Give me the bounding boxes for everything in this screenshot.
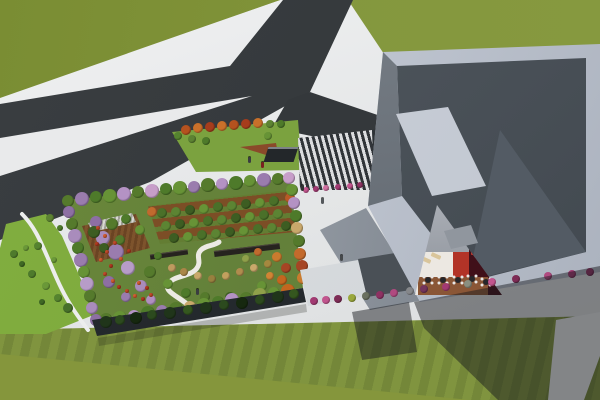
- garden-border-dot: [128, 310, 140, 322]
- garden-interior-dot: [257, 281, 267, 291]
- flower-dots-dot: [105, 250, 109, 254]
- terrace-table-cluster: [469, 276, 475, 282]
- plaza-flowers-dot: [323, 185, 329, 191]
- strip-bushes-dot: [10, 250, 18, 258]
- courtyard-tables: [0, 0, 600, 400]
- patch-trees-dot: [264, 132, 272, 140]
- garden-interior-dot: [103, 276, 115, 288]
- flower-dots-dot: [137, 281, 141, 285]
- strip-bushes-dot: [63, 303, 73, 313]
- facade-bushes-dot: [115, 315, 125, 325]
- facade-bushes-dot: [219, 300, 229, 310]
- street-bushes-dot: [376, 291, 384, 299]
- flower-dots-dot: [95, 242, 99, 246]
- alley-shadow: [0, 0, 600, 400]
- orchard-trees-dot: [253, 224, 263, 234]
- garden-border-dot: [90, 191, 102, 203]
- garden-border-dot: [296, 260, 308, 272]
- garden-border-dot: [229, 176, 243, 190]
- courtyard-floor-white: [415, 252, 453, 295]
- strip-bushes-dot: [39, 299, 45, 305]
- garden-border-dot: [244, 175, 256, 187]
- plaza-flowers-dot: [357, 182, 363, 188]
- garden-border-dot: [160, 183, 172, 195]
- facade-bushes: [0, 0, 600, 400]
- flower-dots-dot: [133, 294, 137, 298]
- garden-border-dot: [74, 253, 88, 267]
- playground-piece-red: [471, 251, 475, 255]
- street-bushes-dot: [586, 268, 594, 276]
- striped-lawn: [0, 0, 600, 400]
- courtyard: [0, 0, 600, 400]
- orchard-trees-dot: [199, 204, 209, 214]
- street-bushes-dot: [512, 275, 520, 283]
- shadow-annex: [0, 0, 600, 400]
- orchard-trees-dot: [259, 210, 269, 220]
- garden-border-dot: [63, 206, 75, 218]
- garden-border-dot: [113, 311, 127, 325]
- street-bushes-dot: [310, 297, 318, 305]
- strip-bushes-dot: [34, 242, 42, 250]
- garden-border-dot: [212, 296, 224, 308]
- plaza-flowers: [0, 0, 600, 400]
- terrace-table-cluster: [440, 277, 446, 283]
- garden-interior-dot: [222, 272, 230, 280]
- patch-trees-dot: [174, 132, 182, 140]
- orchard-trees-dot: [171, 207, 181, 217]
- flower-dots-dot: [99, 258, 103, 262]
- flower-dots-dot: [125, 289, 129, 293]
- green-strip-west: [0, 0, 600, 400]
- orchard-trees-dot: [185, 205, 195, 215]
- garden-border-dot: [62, 195, 74, 207]
- garden-facade-shadow: [0, 0, 600, 400]
- fork-lawn-patch: [0, 0, 600, 400]
- garden-border-dot: [141, 306, 155, 320]
- garden-border-dot: [257, 173, 271, 187]
- strip-bushes: [0, 0, 600, 400]
- strip-bushes-dot: [46, 214, 54, 222]
- garden-border-dot: [66, 218, 78, 230]
- garden-border-dot: [283, 172, 295, 184]
- orchard-trees-dot: [239, 226, 249, 236]
- striped-plaza: [0, 0, 600, 400]
- strip-bushes-dot: [42, 282, 50, 290]
- orchard-trees-dot: [269, 196, 279, 206]
- garden-border-dot: [197, 298, 211, 312]
- garden-border-dot: [297, 272, 309, 284]
- orchard-trees-dot: [197, 230, 207, 240]
- orchard-trees-dot: [203, 216, 213, 226]
- street-bushes-dot: [322, 296, 330, 304]
- garden-border-dot: [293, 235, 305, 247]
- courtyard-wall: [415, 205, 502, 258]
- garden-border-dot: [272, 173, 284, 185]
- facade-bushes-dot: [164, 307, 176, 319]
- facade-bushes-dot: [130, 312, 142, 324]
- orchard-trees-dot: [217, 215, 227, 225]
- grass-top-left: [0, 0, 600, 400]
- orchard-trees-dot: [183, 232, 193, 242]
- garden-border-dot: [281, 284, 295, 298]
- roof-light-plane: [0, 0, 600, 400]
- garden-interior-dot: [99, 243, 109, 253]
- building-parapet: [0, 0, 600, 400]
- flower-dots-dot: [103, 272, 107, 276]
- bus-shelter-canopy: [264, 147, 299, 162]
- garden-interior-dot: [146, 295, 156, 305]
- patch-trees-dot: [205, 122, 215, 132]
- plaza-flowers-dot: [313, 186, 319, 192]
- flower-dots-dot: [111, 279, 115, 283]
- annex-roof-dark: [0, 0, 600, 400]
- garden-border-dot: [173, 181, 187, 195]
- patch-trees-dot: [188, 135, 196, 143]
- garden-border-dot: [288, 197, 300, 209]
- garden-interior-dot: [277, 275, 287, 285]
- street-bushes-dot: [390, 289, 398, 297]
- courtyard-terrace-brown: [418, 277, 488, 295]
- facade-bushes-dot: [236, 297, 248, 309]
- garden-border-dot: [188, 181, 200, 193]
- facade-bushes-dot: [272, 291, 284, 303]
- garden-border-dot: [72, 242, 84, 254]
- orchard-trees-dot: [225, 227, 235, 237]
- deck-pergola: [0, 0, 600, 400]
- patch-trees-dot: [241, 119, 251, 129]
- garden-interior-dot: [115, 235, 125, 245]
- garden-border-dot: [103, 189, 117, 203]
- flower-dots-dot: [141, 297, 145, 301]
- orchard-soil: [0, 0, 600, 400]
- garden-interior-dot: [264, 260, 272, 268]
- strip-bushes-dot: [28, 270, 36, 278]
- orchard-trees-dot: [255, 198, 265, 208]
- garden-flower-dots: [0, 0, 600, 400]
- street-bushes-dot: [464, 280, 472, 288]
- road-east: [0, 0, 600, 400]
- flower-dots-dot: [119, 257, 123, 261]
- plaza-flowers-dot: [347, 183, 353, 189]
- road-main: [0, 0, 600, 400]
- plaza-flowers-dot: [303, 187, 309, 193]
- street-bushes-dot: [348, 294, 356, 302]
- street-bushes-dot: [488, 278, 496, 286]
- garden-border-dot: [240, 292, 252, 304]
- grass-top-right: [0, 0, 600, 400]
- garden-interior-dot: [121, 261, 135, 275]
- garden-interior-dot: [281, 263, 291, 273]
- grass-base: [0, 0, 600, 400]
- amphitheater-triangle: [0, 0, 600, 400]
- west-walkway-path: [22, 214, 88, 330]
- street-bushes-dot: [362, 292, 370, 300]
- courtyard-floor-red: [453, 252, 469, 295]
- garden-interior-dot: [135, 280, 147, 292]
- skylight-big: [0, 0, 600, 400]
- pedestrian: [261, 162, 264, 168]
- patch-trees-dot: [229, 120, 239, 130]
- garden-interior-dot: [88, 226, 100, 238]
- orchard-trees-dot: [267, 223, 277, 233]
- orchard-trees-dot: [211, 229, 221, 239]
- street-bushes-dot: [442, 283, 450, 291]
- flower-dots-dot: [127, 249, 131, 253]
- garden-interior-dot: [135, 225, 145, 235]
- garden-border-dot: [268, 287, 280, 299]
- annex-roof-light: [0, 0, 600, 400]
- garden-border-dot: [291, 222, 303, 234]
- courtyard-floor-maroon: [469, 238, 502, 295]
- lounge-chair-2: [431, 252, 442, 260]
- lounge-chair-1: [421, 256, 432, 264]
- garden-interior-dot: [180, 268, 188, 276]
- garden-border-dot: [216, 178, 228, 190]
- patch-trees-dot: [277, 120, 285, 128]
- garden-border-dot: [145, 184, 159, 198]
- building-left-wall: [0, 0, 600, 400]
- garden-border-trees: [0, 0, 600, 400]
- orchard-trees-dot: [189, 218, 199, 228]
- pedestrian: [248, 157, 251, 163]
- garden-interior-dot: [121, 214, 131, 224]
- flower-dots-dot: [149, 293, 153, 297]
- west-path-svg: [0, 0, 600, 400]
- flower-dots-dot: [109, 264, 113, 268]
- playground-piece-blue: [478, 247, 482, 251]
- garden-border-dot: [184, 301, 196, 313]
- pedestrian: [301, 185, 304, 191]
- street-bushes-dot: [334, 295, 342, 303]
- path-right: [0, 0, 600, 400]
- road-median-island: [0, 0, 600, 400]
- garden-border-dot: [117, 187, 131, 201]
- garden-border-dot: [290, 210, 302, 222]
- strip-bushes-dot: [19, 261, 25, 267]
- plaza-flowers-dot: [335, 184, 341, 190]
- garden-interior-dot: [272, 252, 282, 262]
- garden-bench-2: [214, 243, 280, 257]
- terrace-table-cluster: [455, 277, 461, 283]
- orchard-trees-dot: [213, 202, 223, 212]
- plain-grass: [0, 0, 600, 400]
- garden-border-dot: [253, 288, 267, 302]
- street-bushes-dot: [420, 285, 428, 293]
- garden-border-dot: [68, 229, 82, 243]
- pedestrians: [0, 0, 600, 400]
- orchard-trees-dot: [169, 233, 179, 243]
- pedestrian: [196, 289, 199, 295]
- playground-piece-yellow: [474, 241, 478, 245]
- garden-interior-dot: [194, 272, 202, 280]
- garden-border-dot: [75, 192, 89, 206]
- strip-bushes-dot: [57, 225, 63, 231]
- facade-bushes-dot: [100, 316, 112, 328]
- garden-border-dot: [294, 248, 306, 260]
- pedestrian: [340, 255, 343, 261]
- garden-interior-dot: [250, 264, 258, 272]
- garden-border-dot: [132, 186, 144, 198]
- garden-border-dot: [286, 184, 298, 196]
- orchard-trees-dot: [227, 201, 237, 211]
- facade-bushes-dot: [200, 302, 212, 314]
- garden-border-dot: [84, 290, 96, 302]
- garden-interior-dot: [163, 279, 173, 289]
- garden-interior-dot: [168, 264, 176, 272]
- garden-interior-dot: [96, 231, 110, 245]
- facade-bushes-dot: [147, 310, 157, 320]
- garden-border-dot: [86, 302, 98, 314]
- garden-interior-dot: [121, 292, 131, 302]
- shadow-building: [0, 0, 600, 400]
- pavement-main: [0, 0, 600, 400]
- garden-path-svg: [0, 0, 600, 400]
- street-bushes: [0, 0, 600, 400]
- skylight-small: [0, 0, 600, 400]
- garden-interior-dot: [225, 292, 235, 302]
- garden-interior-dot: [266, 272, 274, 280]
- patch-trees-dot: [181, 125, 191, 135]
- orchard-trees-dot: [241, 199, 251, 209]
- flower-dots-dot: [113, 241, 117, 245]
- orchard-trees-dot: [157, 208, 167, 218]
- render-canvas: [0, 0, 600, 400]
- garden-border-dot: [156, 305, 168, 317]
- orchard-trees-dot: [161, 221, 171, 231]
- strip-bushes-dot: [23, 245, 29, 251]
- building-roof-inner: [0, 0, 600, 400]
- garden-border-dot: [225, 293, 239, 307]
- terrace-table-cluster: [483, 279, 489, 285]
- facade-bushes-dot: [183, 305, 193, 315]
- garden-interior-dot: [106, 218, 118, 230]
- garden-interior-dot: [181, 288, 191, 298]
- patch-trees-dot: [266, 120, 274, 128]
- orchard-trees-dot: [245, 212, 255, 222]
- patch-trees-dot: [202, 137, 210, 145]
- patch-trees-dot: [193, 123, 203, 133]
- orchard-trees-dot: [285, 193, 295, 203]
- garden-border-dot: [90, 314, 102, 326]
- patch-trees: [0, 0, 600, 400]
- patch-trees-dot: [253, 118, 263, 128]
- orchard-trees-dot: [273, 209, 283, 219]
- garden-border-dot: [169, 302, 183, 316]
- playground-piece-green: [469, 245, 473, 249]
- flower-dots-dot: [145, 286, 149, 290]
- orchard-trees-dot: [147, 207, 157, 217]
- garden-interior-dot: [90, 216, 102, 228]
- garden-interior-dot: [200, 292, 210, 302]
- wood-deck: [0, 0, 600, 400]
- flower-dots-dot: [103, 234, 107, 238]
- strip-bushes-dot: [54, 294, 62, 302]
- garden-border-dot: [100, 313, 112, 325]
- garden-interior-dot: [236, 268, 244, 276]
- garden-interior-dot: [144, 266, 156, 278]
- garden-facade: [0, 0, 600, 400]
- garden-interior-dot: [108, 244, 124, 260]
- terrace-table-cluster: [425, 277, 431, 283]
- patch-trees-dot: [217, 121, 227, 131]
- street-bushes-dot: [406, 287, 414, 295]
- street-bushes-dot: [568, 270, 576, 278]
- orchard-trees-dot: [175, 219, 185, 229]
- garden-roof: [0, 0, 600, 400]
- garden-interior-dot: [208, 275, 216, 283]
- garden-interior-trees: [0, 0, 600, 400]
- garden-interior-dot: [242, 255, 250, 263]
- orchard-trees-dot: [281, 221, 291, 231]
- garden-bench-1: [150, 249, 188, 259]
- garden-border-dot: [80, 277, 94, 291]
- garden-border-dot: [78, 266, 90, 278]
- facade-bushes-dot: [255, 295, 265, 305]
- facade-bushes-dot: [289, 289, 299, 299]
- wing-wall: [0, 0, 600, 400]
- pedestrian: [321, 198, 324, 204]
- orchard-trees: [0, 0, 600, 400]
- strip-bushes-dot: [51, 257, 57, 263]
- street-bushes-dot: [544, 272, 552, 280]
- flower-dots-dot: [96, 226, 100, 230]
- orchard-trees-dot: [231, 213, 241, 223]
- garden-border-dot: [201, 178, 215, 192]
- flower-dots-dot: [117, 285, 121, 289]
